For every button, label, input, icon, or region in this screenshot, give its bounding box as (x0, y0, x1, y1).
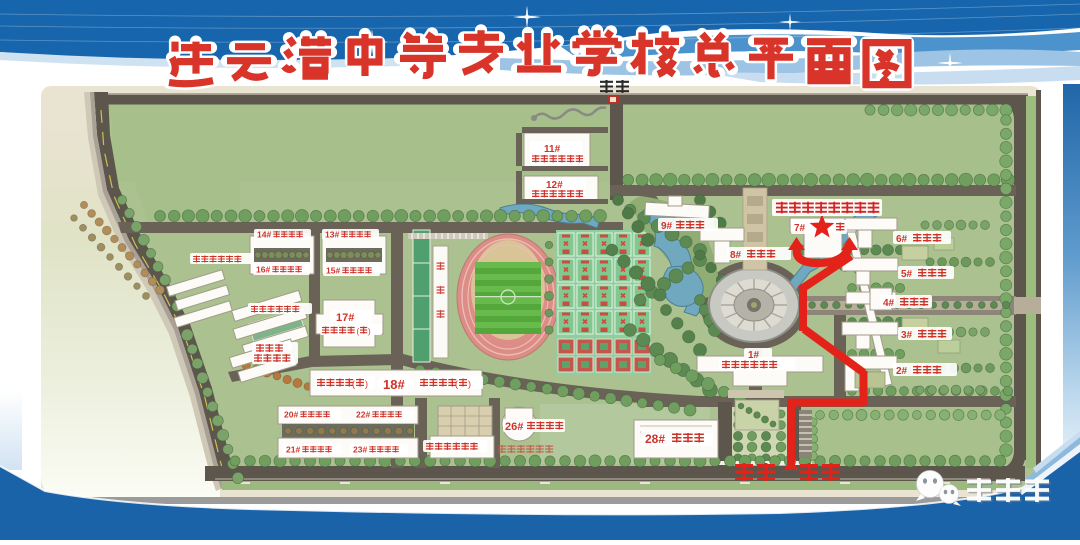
svg-text:2#: 2# (896, 366, 908, 377)
svg-text:13#: 13# (325, 229, 339, 239)
svg-text:9#: 9# (661, 221, 673, 232)
svg-text:(: ( (455, 379, 458, 389)
svg-text:5#: 5# (901, 269, 913, 280)
svg-text:(: ( (357, 327, 360, 336)
svg-text:): ) (365, 379, 368, 389)
svg-text:): ) (368, 327, 371, 336)
svg-text:20#: 20# (284, 409, 298, 419)
svg-text:4#: 4# (883, 298, 895, 309)
svg-text:23#: 23# (353, 444, 367, 454)
svg-text:): ) (468, 379, 471, 389)
svg-text:21#: 21# (286, 444, 300, 454)
svg-text:22#: 22# (356, 409, 370, 419)
svg-text:16#: 16# (256, 264, 270, 274)
svg-text:8#: 8# (730, 250, 742, 261)
svg-text:3#: 3# (901, 330, 913, 341)
svg-text:7#: 7# (794, 223, 806, 234)
svg-text:(: ( (352, 379, 355, 389)
svg-text:11#: 11# (544, 144, 561, 155)
svg-text:12#: 12# (546, 180, 563, 191)
svg-text:6#: 6# (896, 234, 908, 245)
svg-text:18#: 18# (383, 377, 405, 392)
svg-text:26#: 26# (505, 421, 523, 433)
svg-text:14#: 14# (257, 229, 271, 239)
svg-text:15#: 15# (326, 265, 340, 275)
svg-text:28#: 28# (645, 432, 665, 446)
svg-text:17#: 17# (336, 312, 354, 324)
